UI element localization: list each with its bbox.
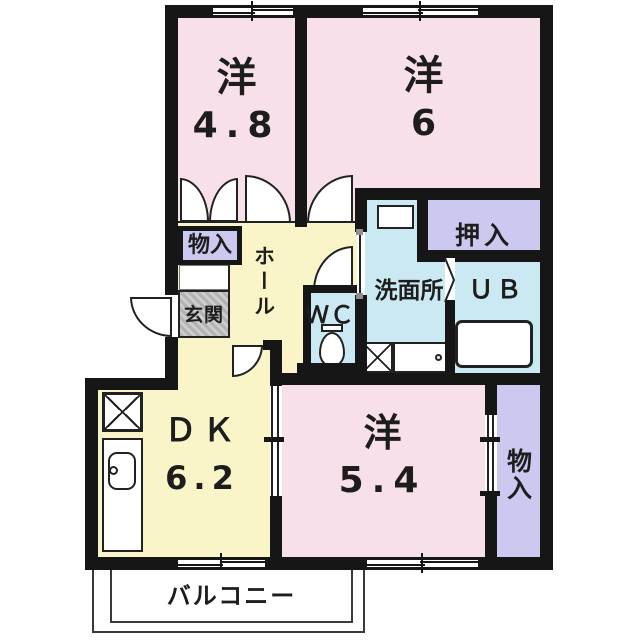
label-western-6: 洋 6 xyxy=(307,52,540,148)
room-size: 4.8 xyxy=(193,102,281,150)
window-sash xyxy=(251,9,293,11)
washroom-door-nub-top xyxy=(356,229,363,235)
label-hall: ホール xyxy=(249,238,277,326)
wall-mid-bottom xyxy=(270,373,553,385)
label-wc: ＷＣ xyxy=(303,300,357,330)
storage-lower-slide-line1 xyxy=(487,415,489,495)
label-western-4-8: 洋 4.8 xyxy=(178,54,295,150)
room-name: 洋 xyxy=(404,52,444,100)
wall-bottom xyxy=(85,557,553,570)
label-oshiire: 押入 xyxy=(428,220,540,250)
wall-room-divider xyxy=(295,18,307,227)
washroom-door-line xyxy=(359,234,361,293)
window-top-west48 xyxy=(213,6,293,17)
room-size: 6 xyxy=(411,100,436,148)
room-name: ＤＫ xyxy=(164,406,240,454)
floorplan-canvas: 洋 4.8 洋 6 洋 5.4 ＤＫ 6.2 ホール 玄関 物入 ＷＣ 洗面所 … xyxy=(0,0,640,640)
label-storage-lower: 物入 xyxy=(500,440,536,510)
window-sash xyxy=(178,564,223,566)
window-tick xyxy=(421,553,423,573)
wall-wc-left xyxy=(303,285,311,375)
storage-lower-slide-line2 xyxy=(492,415,494,495)
wall-dk-top xyxy=(85,378,178,390)
room-name: 洋 xyxy=(363,409,401,457)
faucet-icon xyxy=(109,466,118,475)
label-storage-upper: 物入 xyxy=(178,226,242,265)
window-sash xyxy=(418,9,478,11)
label-western-5-4: 洋 5.4 xyxy=(280,409,485,505)
window-sash xyxy=(220,561,265,563)
wall-dk-divider-bottom xyxy=(270,496,282,557)
label-entrance: 玄関 xyxy=(178,300,230,330)
label-unit-bath: ＵＢ xyxy=(453,274,540,304)
label-balcony: バルコニー xyxy=(110,582,353,610)
wall-storage-divider-top xyxy=(485,385,497,415)
washroom-door-nub-bottom xyxy=(356,293,363,299)
bathtub-icon xyxy=(455,320,533,368)
wall-oshiire-bottom xyxy=(417,250,540,262)
window-sash xyxy=(367,564,425,566)
window-sash xyxy=(420,561,478,563)
wall-left-upper xyxy=(165,5,178,295)
window-tick xyxy=(419,1,421,21)
label-dk: ＤＫ 6.2 xyxy=(130,406,275,502)
drain-dot-icon xyxy=(435,354,442,361)
wall-door-stub xyxy=(263,340,272,350)
window-tick xyxy=(251,1,253,21)
room-name: 洋 xyxy=(217,54,257,102)
room-size: 6.2 xyxy=(165,454,240,502)
wall-wc-top xyxy=(303,285,357,293)
wall-left-lower xyxy=(85,378,98,570)
label-washroom: 洗面所 xyxy=(365,277,453,305)
vanity-counter-icon xyxy=(393,342,450,373)
window-sash xyxy=(363,12,423,14)
wall-right xyxy=(540,5,553,570)
wall-western6-bottom xyxy=(357,188,540,200)
room-size: 5.4 xyxy=(339,457,427,505)
wall-washroom-left-upper xyxy=(355,188,367,232)
toilet-bowl-icon xyxy=(319,332,345,367)
entrance-door-arc-icon xyxy=(130,297,172,337)
entrance-step xyxy=(179,265,229,290)
wall-unit-bath-left xyxy=(445,300,455,373)
washbasin-icon xyxy=(377,205,414,229)
window-sash xyxy=(213,12,255,14)
wall-storage-divider-bottom xyxy=(485,495,497,557)
